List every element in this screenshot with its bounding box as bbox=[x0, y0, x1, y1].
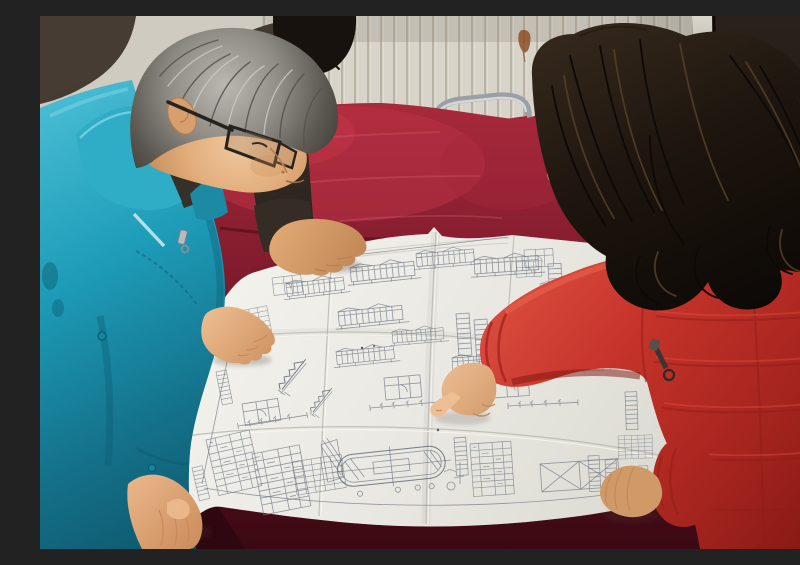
scene-canvas bbox=[40, 16, 800, 549]
jacket-stain-2 bbox=[52, 299, 64, 317]
cheek-shade bbox=[250, 155, 286, 177]
cuff-snap-button bbox=[148, 464, 155, 471]
paper-speck bbox=[373, 345, 375, 347]
paper-speck bbox=[361, 347, 363, 349]
snap-button bbox=[98, 332, 106, 340]
photo-scene bbox=[40, 16, 800, 549]
jacket-stain bbox=[42, 262, 58, 290]
paper-speck bbox=[437, 429, 439, 431]
